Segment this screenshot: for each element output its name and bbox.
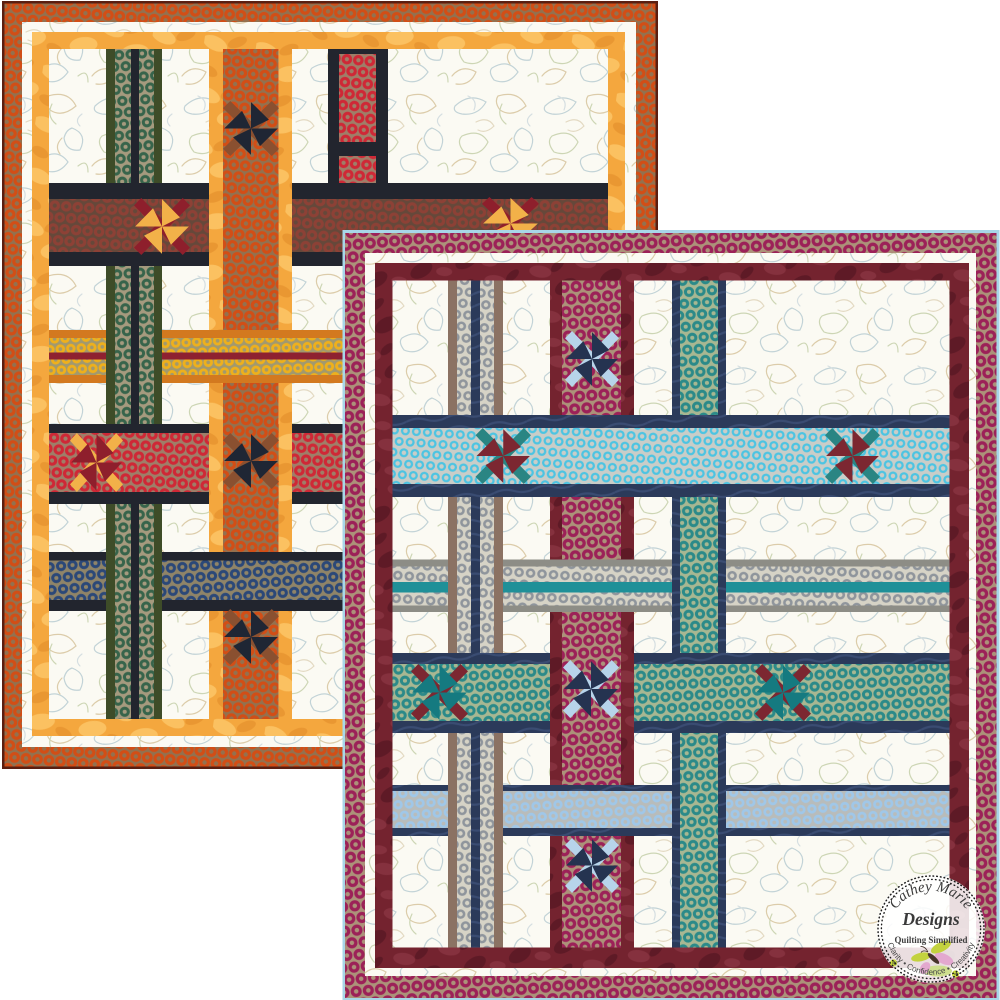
svg-text:Quilting Simplified: Quilting Simplified <box>895 935 968 946</box>
svg-text:Designs: Designs <box>901 909 960 929</box>
